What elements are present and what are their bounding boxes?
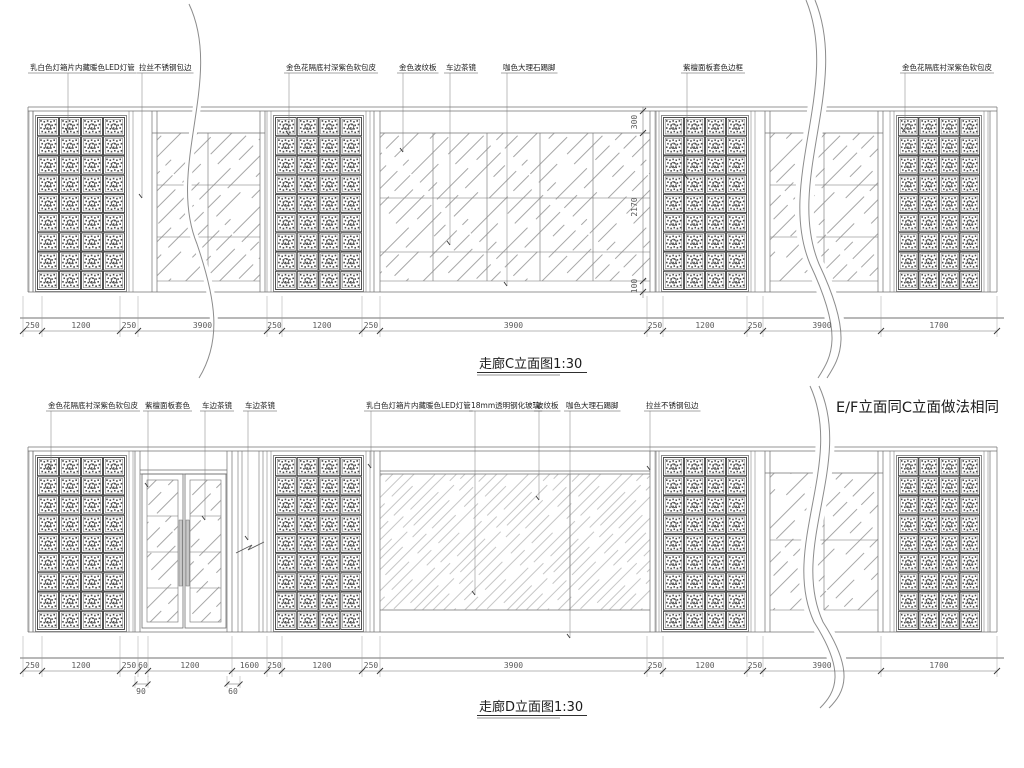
- lattice-flower-panel: [36, 116, 127, 292]
- elevation-c-dimensions: 2501200250390025012002503900250120025039…: [20, 296, 1000, 337]
- tempered-glass-wall: [374, 451, 656, 632]
- lattice-flower-panel: [274, 116, 364, 292]
- dim-label: 1700: [929, 661, 948, 670]
- dim-label: 250: [267, 321, 282, 330]
- dim-label: 3900: [504, 321, 523, 330]
- callout-text: 咖色大理石踢脚: [503, 62, 556, 72]
- callout-text: 乳白色灯箱片内藏暖色LED灯管: [366, 400, 471, 410]
- callout-text: 乳白色灯箱片内藏暖色LED灯管: [30, 62, 135, 72]
- lattice-flower-panel: [274, 456, 364, 632]
- callout-text: 车边茶镜: [245, 400, 275, 410]
- dim-label: 250: [122, 321, 137, 330]
- dim-label: 1200: [695, 321, 714, 330]
- dim-label: 1200: [695, 661, 714, 670]
- vertical-dim-label: 2170: [630, 197, 639, 216]
- lattice-flower-panel: [662, 116, 749, 292]
- dim-label: 1600: [240, 661, 259, 670]
- callout-text: 车边茶镜: [202, 400, 232, 410]
- corridor-elevation-drawing: 3002170100 25012002503900250120025039002…: [0, 0, 1024, 768]
- elevation-d-drawing: [20, 386, 1004, 708]
- lattice-flower-panel: [897, 456, 982, 632]
- dim-label: 250: [25, 321, 40, 330]
- dim-label: 250: [25, 661, 40, 670]
- horizontal-dimensions: 2501200250390025012002503900250120025039…: [20, 296, 1000, 337]
- sub-dim-label: 60: [228, 687, 238, 696]
- callout-text: 紫檀面板套色边框: [683, 62, 743, 72]
- vertical-dim-label: 100: [630, 279, 639, 294]
- callout-text: 金色花隔底衬深紫色软包皮: [48, 400, 138, 410]
- callout-text: 咖色大理石踢脚: [566, 400, 619, 410]
- dim-label: 250: [648, 321, 663, 330]
- vertical-dim-label: 300: [630, 115, 639, 130]
- callout-text: 金色花隔底衬深紫色软包皮: [902, 62, 992, 72]
- sub-dim-label: 90: [136, 687, 146, 696]
- dim-label: 1700: [929, 321, 948, 330]
- dim-label: 3900: [812, 321, 831, 330]
- dim-label: 1200: [71, 321, 90, 330]
- dim-label: 250: [748, 321, 763, 330]
- dim-label: 250: [364, 321, 379, 330]
- callout-text: 波纹板: [536, 400, 559, 410]
- dim-label: 250: [748, 661, 763, 670]
- sub-dimensions: 9060: [133, 676, 243, 696]
- door-sidelight: [236, 451, 264, 632]
- lattice-flower-panel: [36, 456, 127, 632]
- dim-label: 3900: [193, 321, 212, 330]
- dim-label: 1200: [312, 321, 331, 330]
- callout-text: 金色花隔底衬深紫色软包皮: [286, 62, 376, 72]
- horizontal-dimensions: 2501200250601200160025012002503900250120…: [20, 636, 1000, 677]
- note-ef-elevation: E/F立面同C立面做法相同: [836, 399, 999, 416]
- dim-label: 250: [364, 661, 379, 670]
- lattice-flower-panel: [897, 116, 982, 292]
- dim-label: 1200: [312, 661, 331, 670]
- dim-label: 1200: [71, 661, 90, 670]
- dim-label: 250: [267, 661, 282, 670]
- callout-text: 拉丝不锈钢包边: [139, 62, 192, 72]
- callout-text: 金色波纹板: [399, 62, 437, 72]
- title-elevation-c: 走廊C立面图1:30: [479, 356, 582, 372]
- dim-label: 250: [648, 661, 663, 670]
- dim-label: 60: [138, 661, 148, 670]
- lattice-flower-panel: [662, 456, 749, 632]
- dim-label: 1200: [180, 661, 199, 670]
- callout-text: 拉丝不锈钢包边: [646, 400, 699, 410]
- title-elevation-d: 走廊D立面图1:30: [479, 699, 583, 715]
- dim-label: 250: [122, 661, 137, 670]
- dim-label: 3900: [504, 661, 523, 670]
- mirror-panel: [152, 111, 265, 292]
- callout-text: 车边茶镜: [446, 62, 476, 72]
- mirror-glass-wall: [374, 111, 656, 292]
- elevation-d-dimensions: 2501200250601200160025012002503900250120…: [20, 636, 1000, 696]
- drawing-sheet: 3002170100 25012002503900250120025039002…: [0, 0, 1024, 768]
- material-callout: 车边茶镜: [243, 400, 277, 540]
- callout-text: 紫檀面板套色: [145, 400, 190, 410]
- double-glass-door: [135, 451, 232, 632]
- callout-text: 18mm透明钢化玻璃: [471, 400, 541, 410]
- dim-label: 3900: [812, 661, 831, 670]
